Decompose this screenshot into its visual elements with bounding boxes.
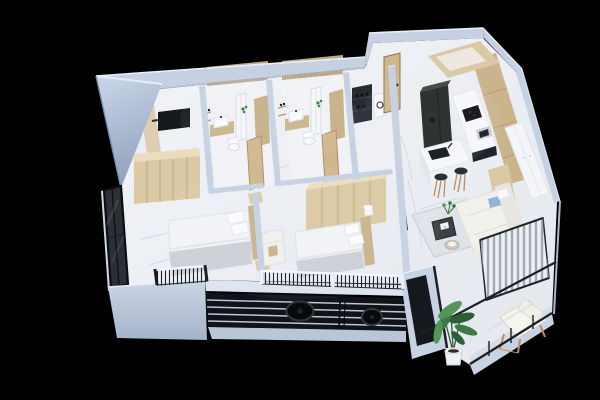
marble-veins (140, 120, 540, 344)
wall-tv (398, 198, 408, 232)
kettle (430, 118, 435, 123)
back-wall (96, 57, 366, 91)
bedroom-2 (262, 172, 389, 278)
lounge-chair (500, 298, 547, 353)
balcony-door-frame (434, 266, 447, 348)
apartment-3d-scene (0, 0, 600, 400)
front-railing (261, 270, 404, 289)
chair-back (518, 298, 543, 323)
headboard (360, 216, 375, 266)
appliance-door (377, 102, 383, 108)
wall-bath2-utility (343, 72, 359, 180)
window-sill (101, 190, 111, 291)
sofa-chaise (472, 235, 526, 260)
louver-grille (206, 293, 406, 331)
east-wall (483, 28, 560, 203)
louver-slats (207, 300, 406, 326)
wall-bedroom-divider (252, 191, 266, 285)
dark-shelf-unit (352, 84, 372, 124)
toilet-tank (303, 131, 314, 139)
ledge-top-band (205, 280, 405, 296)
wall-shelves (203, 112, 211, 122)
island-faucet (448, 143, 452, 148)
books (440, 222, 449, 230)
condenser-fan (362, 309, 382, 325)
shower-partition (329, 89, 345, 141)
window-mullion (112, 188, 119, 286)
gray-throw (296, 251, 364, 278)
balcony (420, 218, 556, 375)
toilet (229, 144, 240, 151)
vanity-shelf (210, 121, 234, 137)
side-table (445, 241, 459, 250)
wall-hall-west (388, 65, 411, 284)
wall-bath1-front (208, 183, 264, 194)
sink (289, 109, 303, 122)
gray-throw (169, 241, 252, 274)
wall-shelves (278, 106, 286, 116)
toilet (304, 138, 315, 145)
potted-banana-plant (432, 298, 479, 365)
ledge-bottom (208, 327, 406, 342)
chair-seat (500, 300, 547, 338)
door-handle (396, 84, 399, 87)
sofa-backrest (494, 182, 527, 237)
plant-accent (316, 100, 322, 108)
wall-utility-front (346, 169, 393, 179)
parapet (108, 280, 207, 340)
entry-back-wall (365, 28, 484, 67)
island-front (430, 161, 470, 186)
bathroom-1-floor (206, 79, 278, 190)
master-bedroom (124, 91, 270, 275)
chair (268, 245, 278, 257)
interior-walls (199, 65, 411, 285)
wall-bath-divider (266, 79, 281, 186)
tall-dark-cabinet (420, 85, 452, 148)
railing-base (470, 313, 552, 364)
juliet-railing (155, 265, 208, 286)
sofa (455, 189, 522, 259)
handrail (420, 262, 556, 334)
pillow (344, 223, 360, 235)
wood-cabinet-wall (472, 53, 534, 184)
cooktop (462, 105, 482, 122)
wood-wall-strip (138, 91, 166, 189)
angled-west-wall (96, 76, 162, 188)
wood-slat-wall (282, 55, 343, 80)
wardrobe (134, 156, 200, 204)
plant-accent (241, 106, 247, 114)
shower-partition (254, 95, 270, 147)
window-glass (104, 186, 128, 289)
bar-stool (434, 174, 448, 199)
condenser-fan (287, 302, 314, 321)
entry-kitchen (384, 41, 534, 198)
pillow (348, 234, 364, 246)
striped-privacy-screen (480, 218, 549, 300)
toilet-tank (228, 137, 239, 145)
wall-bath1-west (199, 85, 214, 191)
built-in-closet (505, 122, 549, 199)
entry-door (384, 53, 400, 113)
exterior-walls (96, 28, 560, 314)
black-backdrop (0, 0, 600, 400)
pipes (339, 301, 340, 329)
blue-pillow (488, 196, 501, 208)
balcony-fascia (470, 314, 554, 375)
floor-plan-render (0, 0, 600, 400)
sink (214, 115, 228, 128)
floor-plate (104, 38, 557, 365)
rug (412, 200, 488, 257)
pillow (231, 222, 249, 235)
nightstand (255, 259, 270, 271)
railing-glass (470, 305, 552, 364)
table-lamp (254, 187, 259, 192)
island-sink (428, 147, 450, 160)
counter-base (472, 146, 497, 162)
island-counter (420, 139, 470, 172)
utility-floor (348, 68, 402, 182)
shower-glass (247, 96, 249, 142)
bar-stool (454, 168, 468, 193)
oven (476, 126, 492, 140)
bed (295, 222, 364, 278)
sofa-back-wall-panel (488, 164, 524, 246)
west-wall-face (124, 93, 150, 189)
table-lamp (364, 206, 373, 216)
cabinet-fronts (436, 47, 486, 71)
living-room (398, 122, 549, 260)
bed (168, 210, 252, 274)
counter (452, 89, 496, 153)
small-plant (442, 201, 455, 214)
east-edge (554, 201, 560, 314)
wardrobe (306, 178, 386, 234)
trough-interior (406, 275, 438, 346)
faucet (295, 110, 297, 112)
nightstand (248, 192, 263, 204)
plant-pot (445, 351, 462, 365)
wood-slat-wall (207, 61, 268, 86)
wall-bath2-front (278, 174, 347, 186)
light-glow (160, 70, 500, 300)
front-fascia (108, 266, 447, 359)
bathroom-1 (203, 61, 278, 190)
wall-tv (158, 108, 190, 131)
headboard (248, 204, 264, 260)
dresser (262, 229, 285, 266)
mirror-cabinet (311, 87, 321, 135)
white-appliance (374, 92, 386, 118)
planter-trough (400, 266, 447, 359)
bathroom-2 (278, 55, 353, 184)
bathroom-door (322, 130, 339, 184)
tv-arm (152, 120, 158, 121)
pillow (227, 211, 245, 224)
coffee-table (432, 217, 456, 240)
corner-glass-window (101, 186, 128, 291)
bathroom-2-floor (281, 73, 353, 184)
white-pillow (497, 188, 509, 199)
faucet (220, 116, 222, 118)
shower-glass (322, 90, 324, 136)
bathroom-door (247, 136, 264, 190)
railings (155, 265, 404, 289)
vanity-shelf (285, 115, 309, 131)
mirror-cabinet (236, 93, 246, 141)
upper-cabinets (428, 41, 500, 78)
utility-room (348, 68, 402, 182)
